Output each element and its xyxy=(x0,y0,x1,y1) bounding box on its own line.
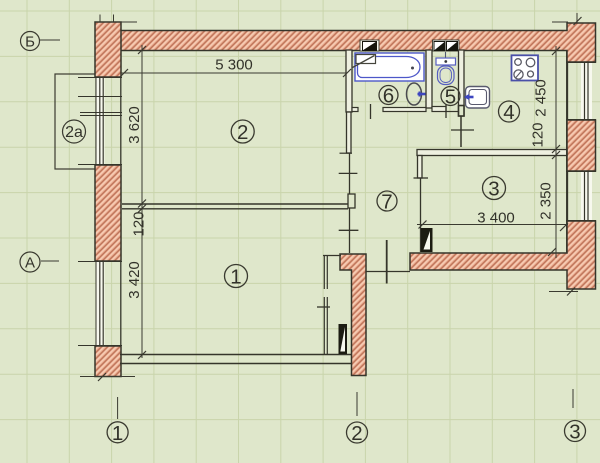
svg-text:1: 1 xyxy=(230,266,241,289)
svg-text:120: 120 xyxy=(529,122,546,147)
svg-text:4: 4 xyxy=(503,101,514,124)
svg-text:1: 1 xyxy=(112,422,123,445)
svg-text:2а: 2а xyxy=(65,124,83,141)
svg-text:3: 3 xyxy=(488,178,499,201)
svg-text:3 400: 3 400 xyxy=(477,210,515,227)
svg-text:5 300: 5 300 xyxy=(215,57,253,74)
svg-text:2: 2 xyxy=(351,422,362,445)
svg-text:Б: Б xyxy=(25,33,35,50)
svg-text:2 450: 2 450 xyxy=(532,79,549,117)
svg-text:3 420: 3 420 xyxy=(126,261,143,299)
svg-text:6: 6 xyxy=(383,84,394,107)
svg-text:7: 7 xyxy=(381,191,392,214)
svg-text:120: 120 xyxy=(130,211,147,236)
svg-text:2 350: 2 350 xyxy=(537,182,554,220)
svg-text:2: 2 xyxy=(237,121,248,144)
svg-text:3: 3 xyxy=(569,421,580,444)
svg-text:А: А xyxy=(25,254,35,271)
svg-text:3 620: 3 620 xyxy=(126,106,143,144)
svg-text:5: 5 xyxy=(445,85,456,108)
